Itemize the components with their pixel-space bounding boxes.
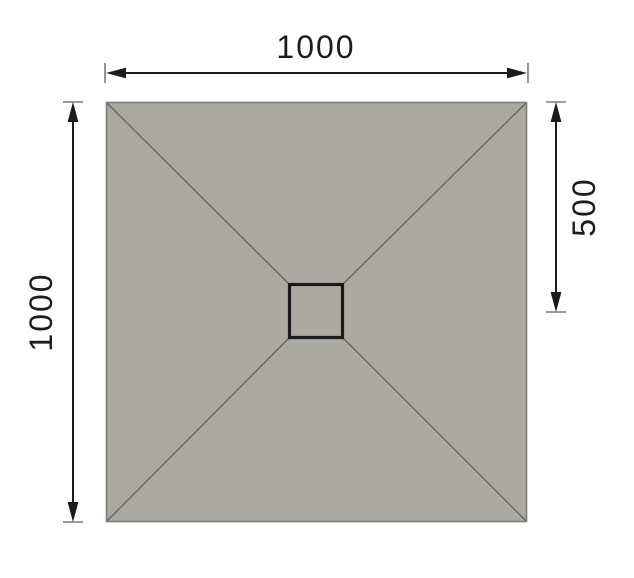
height-label: 1000 <box>23 272 59 351</box>
width-arrowhead-right-icon <box>507 68 527 79</box>
half-height-arrowhead-bottom-icon <box>551 292 562 312</box>
width-label: 1000 <box>276 29 355 65</box>
drain-square <box>290 285 343 338</box>
height-arrowhead-top-icon <box>68 102 79 122</box>
width-arrowhead-left-icon <box>106 68 126 79</box>
dimension-half-height: 500 <box>546 102 602 312</box>
half-height-arrowhead-top-icon <box>551 102 562 122</box>
half-height-label: 500 <box>566 177 602 236</box>
dimension-width: 1000 <box>105 29 528 83</box>
shower-tray-dimension-diagram: 1000 1000 500 <box>0 0 634 578</box>
height-arrowhead-bottom-icon <box>68 502 79 522</box>
diagram-canvas: 1000 1000 500 <box>0 0 634 578</box>
dimension-height: 1000 <box>23 102 83 522</box>
